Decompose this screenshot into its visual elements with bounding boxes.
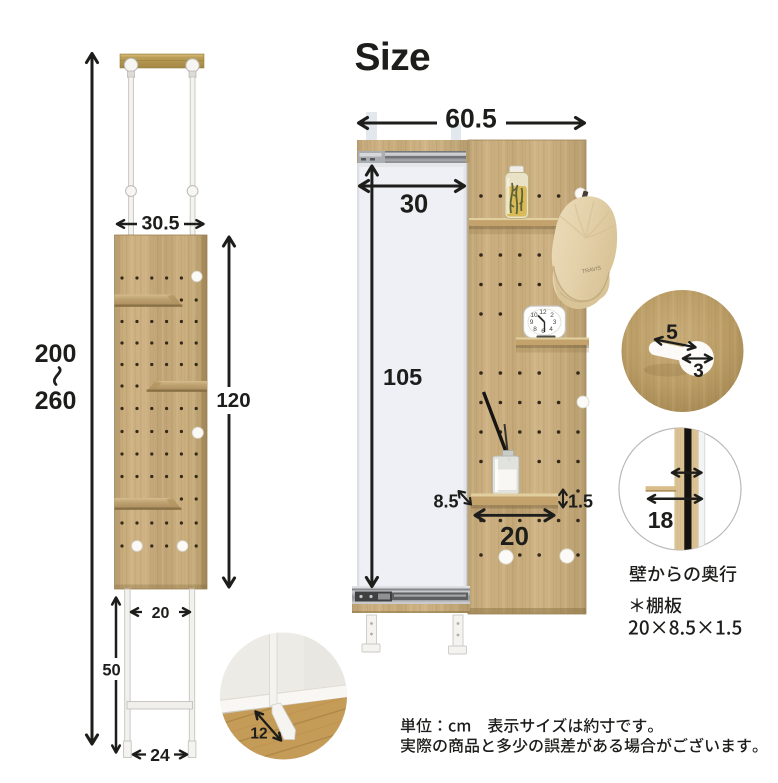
svg-text:30.5: 30.5 [142,213,180,235]
svg-text:120: 120 [216,389,250,412]
svg-text:Size: Size [355,36,431,79]
svg-text:60.5: 60.5 [445,104,497,134]
svg-text:2: 2 [550,312,554,319]
svg-text:4: 4 [549,326,553,333]
svg-text:12: 12 [539,309,547,316]
svg-text:3: 3 [693,361,704,382]
svg-text:24: 24 [150,745,170,765]
svg-text:1.5: 1.5 [568,492,593,512]
svg-text:20: 20 [152,605,170,622]
svg-text:18: 18 [648,507,674,533]
svg-text:10: 10 [530,312,538,319]
svg-text:9: 9 [530,319,534,326]
svg-text:200: 200 [35,340,77,368]
svg-text:12: 12 [250,726,267,743]
svg-text:8.5: 8.5 [433,492,458,512]
svg-text:5: 5 [666,321,678,344]
svg-text:8: 8 [533,326,537,333]
svg-text:30: 30 [400,191,428,219]
svg-text:105: 105 [383,364,422,390]
svg-text:20: 20 [500,521,529,551]
svg-text:260: 260 [35,387,77,415]
svg-text:3: 3 [553,319,557,326]
svg-text:50: 50 [102,662,120,680]
